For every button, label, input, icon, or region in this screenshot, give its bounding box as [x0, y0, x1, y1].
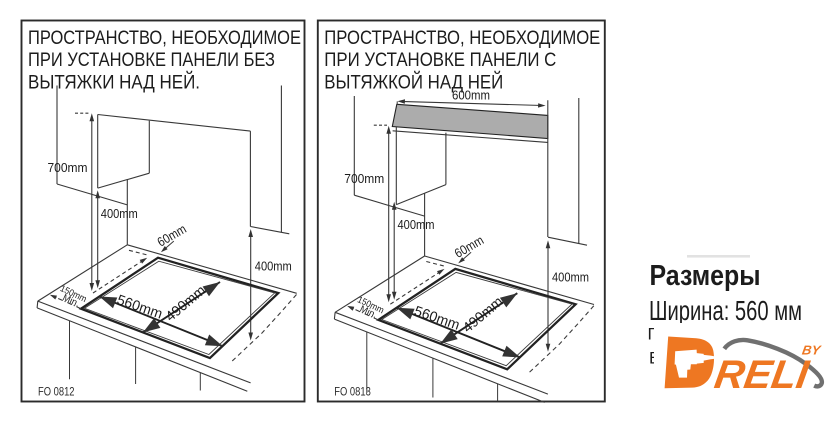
svg-text:700mm: 700mm [344, 171, 384, 186]
svg-text:400mm: 400mm [552, 270, 589, 285]
svg-text:ПРОСТРАНСТВО, НЕОБХОДИМОЕ: ПРОСТРАНСТВО, НЕОБХОДИМОЕ [28, 27, 301, 49]
svg-text:ВЫТЯЖКИ НАД НЕЙ.: ВЫТЯЖКИ НАД НЕЙ. [28, 69, 200, 93]
svg-text:ПРОСТРАНСТВО, НЕОБХОДИМОЕ: ПРОСТРАНСТВО, НЕОБХОДИМОЕ [324, 27, 600, 49]
svg-text:Ширина: 560 мм: Ширина: 560 мм [649, 295, 802, 326]
svg-text:400mm: 400mm [255, 259, 292, 274]
svg-text:ПРИ УСТАНОВКЕ ПАНЕЛИ С: ПРИ УСТАНОВКЕ ПАНЕЛИ С [324, 49, 556, 71]
svg-text:ПРИ УСТАНОВКЕ ПАНЕЛИ БЕЗ: ПРИ УСТАНОВКЕ ПАНЕЛИ БЕЗ [28, 49, 275, 71]
svg-text:400mm: 400mm [101, 206, 138, 221]
svg-text:RELI: RELI [712, 352, 813, 397]
svg-text:400mm: 400mm [398, 217, 435, 232]
svg-text:FO 0813: FO 0813 [334, 387, 371, 399]
svg-text:600mm: 600mm [452, 88, 490, 103]
svg-text:FO 0812: FO 0812 [38, 387, 75, 399]
svg-text:700mm: 700mm [48, 160, 88, 175]
svg-text:Размеры: Размеры [650, 260, 761, 292]
